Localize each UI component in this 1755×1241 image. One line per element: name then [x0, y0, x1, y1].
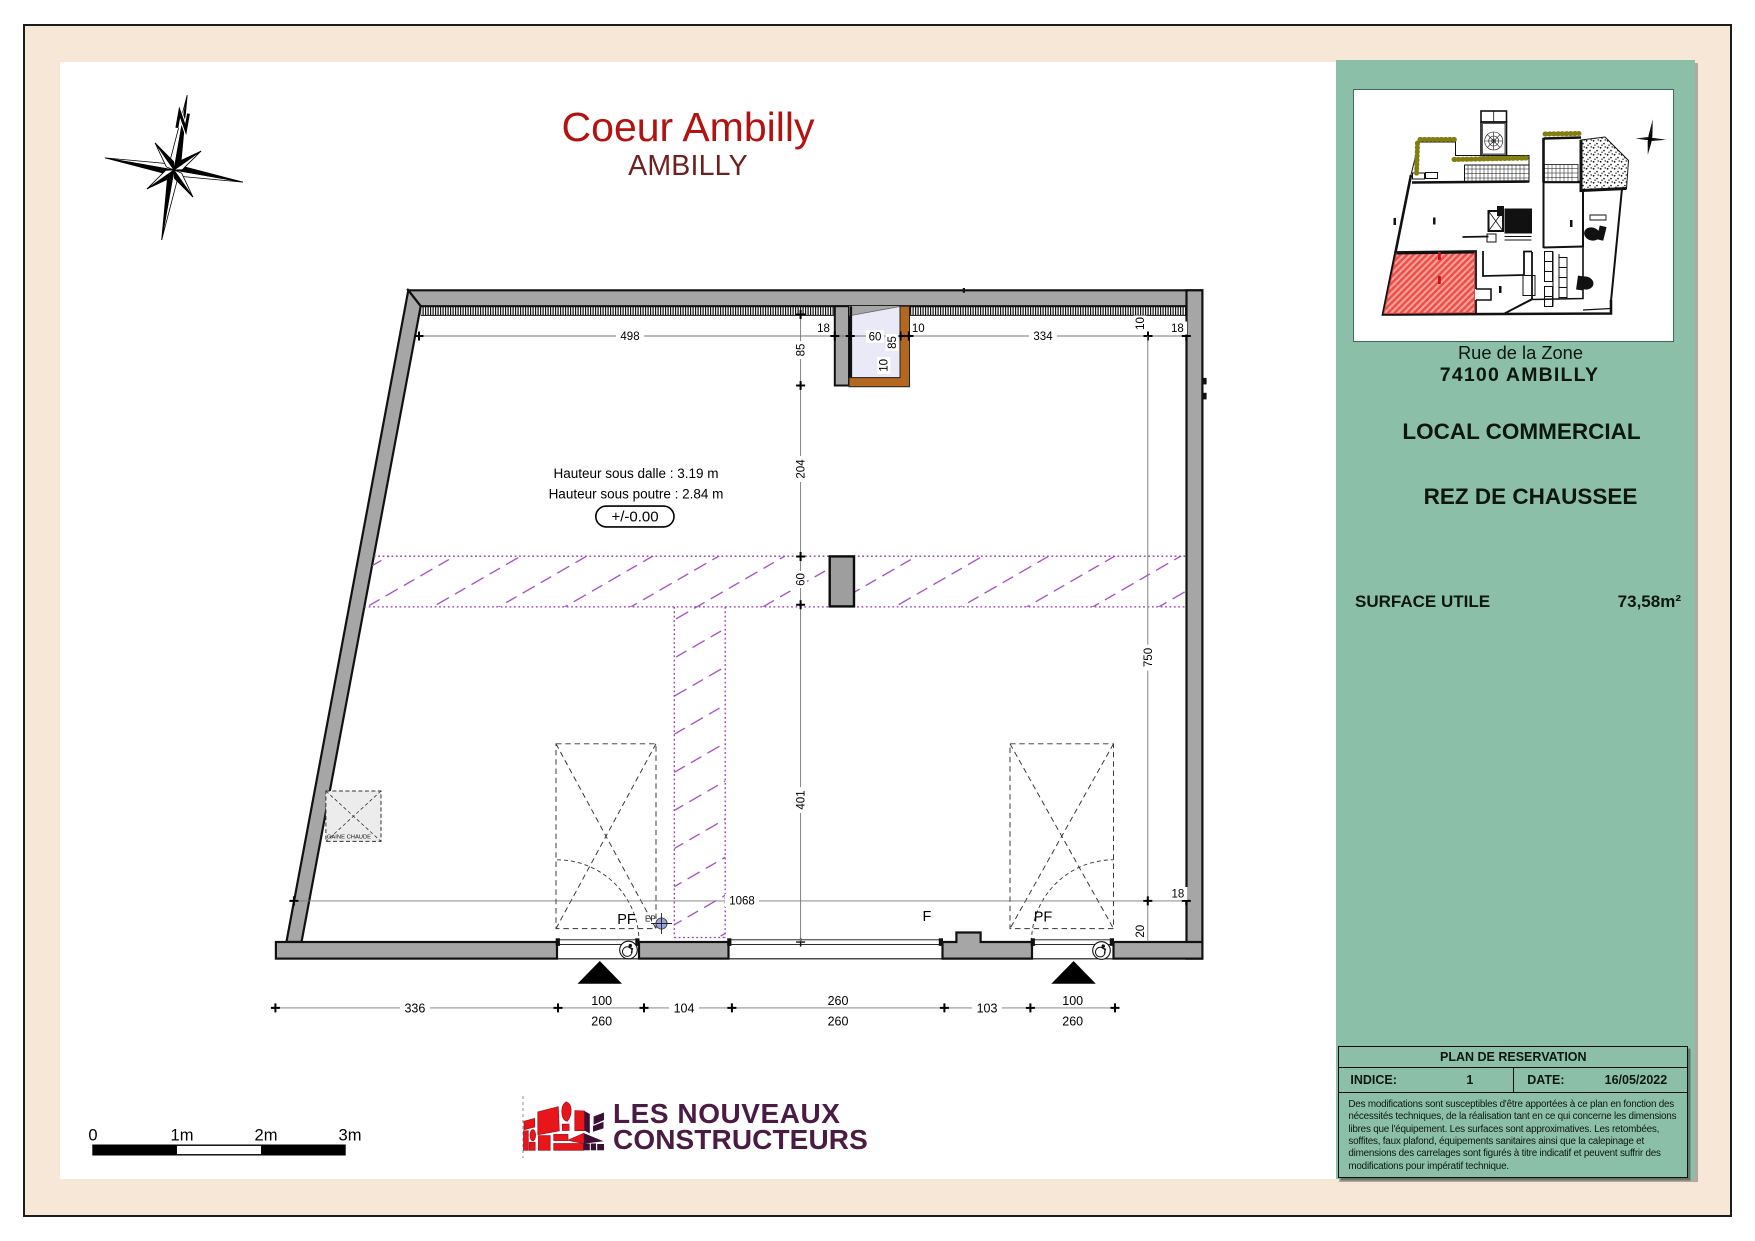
svg-text:1m: 1m [171, 1127, 194, 1145]
svg-text:10: 10 [1135, 317, 1147, 330]
svg-text:EP: EP [645, 915, 656, 924]
svg-text:260: 260 [591, 1015, 612, 1029]
svg-text:103: 103 [977, 1002, 998, 1016]
svg-text:2m: 2m [255, 1127, 278, 1145]
svg-text:3m: 3m [339, 1127, 362, 1145]
svg-text:1068: 1068 [729, 896, 755, 908]
svg-text:104: 104 [674, 1002, 695, 1016]
svg-text:Hauteur sous dalle : 3.19 m: Hauteur sous dalle : 3.19 m [553, 466, 718, 481]
svg-text:F: F [922, 909, 931, 925]
svg-text:20: 20 [1135, 925, 1147, 938]
svg-text:60: 60 [869, 332, 882, 344]
svg-text:10: 10 [912, 323, 925, 335]
svg-text:334: 334 [1033, 331, 1053, 343]
svg-text:PF: PF [617, 912, 636, 928]
svg-text:336: 336 [404, 1002, 425, 1016]
svg-text:18: 18 [817, 323, 830, 335]
svg-text:10: 10 [879, 359, 891, 372]
svg-text:498: 498 [620, 331, 639, 343]
svg-text:260: 260 [1062, 1015, 1083, 1029]
svg-text:750: 750 [1143, 648, 1155, 667]
svg-text:85: 85 [887, 336, 899, 349]
svg-text:204: 204 [796, 459, 808, 479]
svg-text:18: 18 [1172, 889, 1185, 901]
svg-text:100: 100 [591, 994, 612, 1008]
svg-text:18: 18 [1171, 323, 1184, 335]
svg-text:401: 401 [796, 790, 808, 809]
svg-text:GAINE CHAUDE: GAINE CHAUDE [327, 835, 371, 841]
svg-text:0: 0 [88, 1127, 97, 1145]
svg-text:260: 260 [828, 1015, 849, 1029]
svg-text:Hauteur sous poutre : 2.84 m: Hauteur sous poutre : 2.84 m [549, 487, 724, 502]
svg-text:100: 100 [1062, 994, 1083, 1008]
svg-text:+/-0.00: +/-0.00 [611, 509, 658, 526]
svg-text:PF: PF [1034, 910, 1053, 926]
svg-text:60: 60 [796, 573, 808, 586]
svg-text:85: 85 [796, 344, 808, 357]
svg-text:260: 260 [828, 994, 849, 1008]
